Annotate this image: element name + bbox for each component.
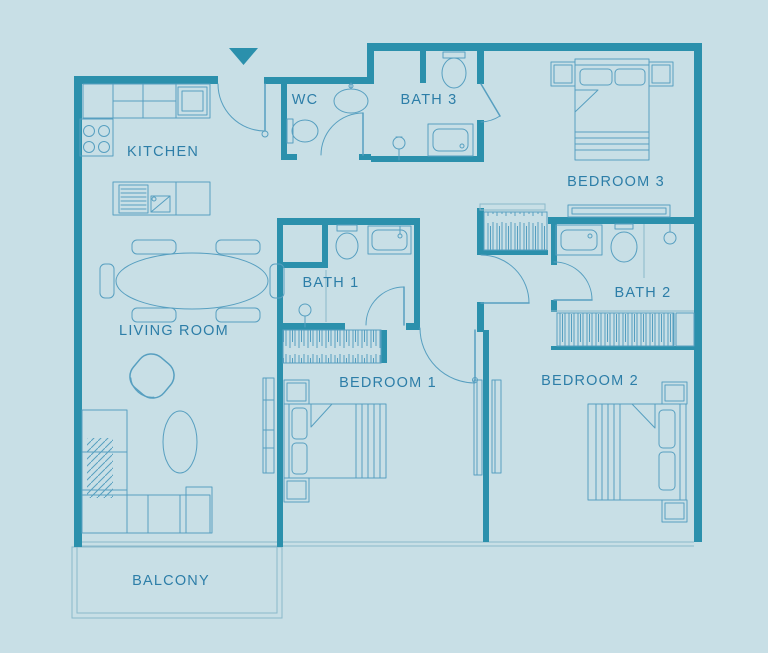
bath3-toilet-icon bbox=[442, 52, 466, 88]
tv-console-bedroom1 bbox=[474, 380, 482, 475]
dresser-bedroom3 bbox=[568, 205, 670, 217]
wardrobe-bedroom1 bbox=[283, 330, 381, 363]
room-label-bedroom3: BEDROOM 3 bbox=[567, 174, 665, 190]
wardrobe-bedroom2 bbox=[551, 311, 694, 346]
closet-door bbox=[481, 255, 529, 303]
bath1-door bbox=[366, 287, 404, 325]
bath3-door bbox=[481, 84, 500, 122]
sofa-throw bbox=[87, 438, 113, 498]
entrance-marker-icon bbox=[229, 48, 258, 65]
room-label-bedroom1: BEDROOM 1 bbox=[339, 375, 437, 391]
tv-console-bedroom2 bbox=[492, 380, 501, 473]
bath2-shower-icon bbox=[644, 224, 676, 278]
bed-bedroom2 bbox=[588, 382, 687, 522]
dining-table bbox=[100, 240, 284, 322]
armchair bbox=[123, 348, 180, 405]
bed-bedroom3 bbox=[551, 59, 673, 160]
bath2-toilet-icon bbox=[611, 224, 637, 262]
floor-plan: KITCHEN WC BATH 3 BEDROOM 3 BATH 1 BATH … bbox=[0, 0, 768, 653]
wc-sink-icon bbox=[334, 83, 368, 113]
room-label-bedroom2: BEDROOM 2 bbox=[541, 373, 639, 389]
room-label-living-room: LIVING ROOM bbox=[119, 323, 229, 339]
entrance-door bbox=[218, 84, 268, 137]
tv-console-living bbox=[263, 378, 274, 473]
cooktop-icon bbox=[80, 119, 113, 156]
wc-toilet-icon bbox=[287, 119, 318, 143]
floor-plan-canvas bbox=[0, 0, 768, 653]
wc-door bbox=[321, 113, 363, 155]
room-label-bath2: BATH 2 bbox=[615, 285, 672, 301]
room-label-bath3: BATH 3 bbox=[401, 92, 458, 108]
bath1-toilet-icon bbox=[336, 225, 358, 259]
bed-bedroom1 bbox=[284, 380, 386, 502]
kitchen-sink-icon bbox=[113, 182, 210, 215]
bedroom2-door bbox=[554, 262, 592, 300]
room-label-wc: WC bbox=[292, 92, 319, 108]
sofa bbox=[82, 410, 212, 533]
corridor-closet bbox=[480, 204, 547, 250]
bath3-sink-icon bbox=[428, 124, 473, 156]
coffee-table bbox=[163, 411, 197, 473]
bath1-sink-icon bbox=[368, 226, 411, 254]
room-label-kitchen: KITCHEN bbox=[127, 144, 199, 160]
bath2-sink-icon bbox=[556, 225, 602, 255]
room-label-bath1: BATH 1 bbox=[303, 275, 360, 291]
room-label-balcony: BALCONY bbox=[132, 573, 210, 589]
bath2-fixtures bbox=[556, 224, 676, 278]
